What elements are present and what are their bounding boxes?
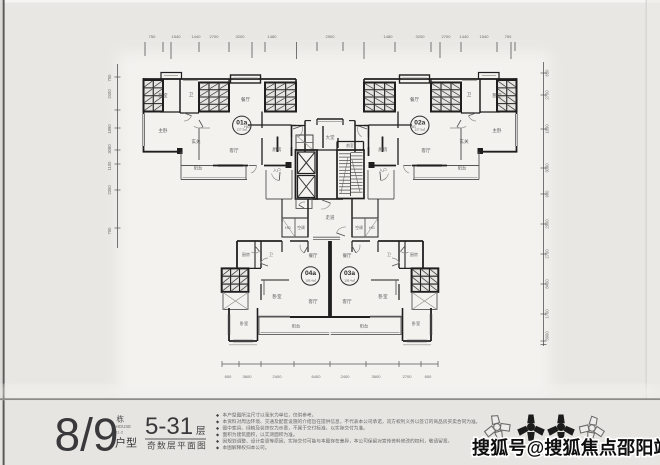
- svg-text:客厅: 客厅: [342, 298, 352, 305]
- svg-text:阳台: 阳台: [360, 323, 368, 330]
- svg-text:玄关: 玄关: [459, 138, 469, 145]
- svg-text:2700: 2700: [545, 90, 550, 100]
- svg-text:本资料对周边环境、交通及配套设施的介绍旨在提供信息，不代表本: 本资料对周边环境、交通及配套设施的介绍旨在提供信息，不代表本公司承诺，双方权利义…: [223, 418, 481, 425]
- svg-text:01a: 01a: [236, 120, 247, 127]
- svg-text:因规划调整、设计变更等原因，实际交付可能与本图存在差异，本公: 因规划调整、设计变更等原因，实际交付可能与本图存在差异，本公司保留对宣传资料修改…: [223, 438, 453, 445]
- svg-text:3600: 3600: [372, 374, 382, 379]
- svg-text:层: 层: [196, 426, 206, 437]
- svg-text:3600: 3600: [243, 374, 253, 379]
- svg-text:HG: HG: [369, 226, 375, 230]
- svg-text:2350: 2350: [107, 185, 112, 195]
- svg-text:1890: 1890: [545, 124, 550, 134]
- svg-text:03a: 03a: [344, 270, 355, 277]
- svg-text:卧室: 卧室: [240, 320, 248, 327]
- svg-text:127.5㎡: 127.5㎡: [237, 127, 248, 132]
- svg-text:2700: 2700: [442, 34, 452, 39]
- svg-text:走道: 走道: [326, 214, 335, 221]
- svg-text:本户型图所注尺寸以毫米为单位，仅供参考。: 本户型图所注尺寸以毫米为单位，仅供参考。: [223, 412, 317, 419]
- svg-text:厨房: 厨房: [410, 251, 418, 257]
- svg-text:3200: 3200: [236, 34, 246, 39]
- svg-text:11-2: 11-2: [116, 430, 124, 435]
- svg-text:1540: 1540: [480, 34, 490, 39]
- svg-text:3080: 3080: [545, 163, 550, 173]
- svg-text:本图解释权归本公司。: 本图解释权归本公司。: [223, 444, 270, 451]
- svg-text:8400: 8400: [545, 279, 550, 289]
- svg-text:1700: 1700: [545, 309, 550, 319]
- svg-text:5-31: 5-31: [145, 413, 193, 440]
- svg-text:1480: 1480: [384, 34, 394, 39]
- svg-text:户型: 户型: [115, 436, 137, 450]
- svg-text:3200: 3200: [416, 34, 426, 39]
- svg-text:2900: 2900: [326, 34, 336, 39]
- svg-text:1440: 1440: [460, 34, 470, 39]
- svg-text:750: 750: [107, 74, 112, 82]
- svg-text:3080: 3080: [107, 144, 112, 154]
- svg-text:大堂: 大堂: [326, 134, 335, 141]
- svg-text:卫: 卫: [189, 92, 194, 97]
- svg-text:面积为建筑面积，以实测面积为准。: 面积为建筑面积，以实测面积为准。: [223, 431, 298, 438]
- svg-text:1480: 1480: [268, 34, 278, 39]
- svg-text:玄关: 玄关: [191, 138, 201, 145]
- svg-text:2400: 2400: [107, 89, 112, 99]
- svg-text:105.4㎡: 105.4㎡: [344, 277, 355, 282]
- svg-text:客厅: 客厅: [421, 147, 431, 154]
- svg-text:105.4㎡: 105.4㎡: [305, 277, 316, 282]
- svg-text:客厅: 客厅: [229, 147, 239, 154]
- svg-text:8/9: 8/9: [55, 409, 119, 461]
- svg-text:厨房: 厨房: [242, 251, 250, 257]
- svg-text:餐厅: 餐厅: [241, 96, 251, 103]
- svg-text:750: 750: [149, 34, 156, 39]
- svg-text:2700: 2700: [210, 34, 220, 39]
- svg-text:3900: 3900: [545, 331, 550, 341]
- svg-text:600: 600: [225, 374, 232, 379]
- svg-text:6400: 6400: [312, 374, 322, 379]
- svg-text:入户: 入户: [273, 167, 281, 173]
- svg-text:2700: 2700: [545, 249, 550, 259]
- svg-text:卫: 卫: [387, 252, 391, 257]
- svg-text:1100: 1100: [107, 161, 112, 171]
- svg-text:卧室: 卧室: [492, 92, 502, 99]
- svg-text:入户: 入户: [379, 167, 387, 173]
- svg-text:阳台: 阳台: [194, 165, 202, 172]
- svg-text:前室: 前室: [346, 143, 354, 148]
- svg-text:卧室: 卧室: [378, 293, 388, 300]
- svg-text:空调: 空调: [355, 225, 363, 230]
- svg-text:卧室: 卧室: [412, 320, 420, 327]
- svg-text:卫: 卫: [269, 252, 273, 257]
- svg-text:HOUSE: HOUSE: [116, 424, 132, 429]
- svg-text:奇数层平面图: 奇数层平面图: [147, 440, 207, 451]
- svg-text:02a: 02a: [414, 120, 425, 127]
- svg-text:主卧: 主卧: [158, 127, 168, 134]
- svg-text:栋: 栋: [117, 414, 125, 424]
- svg-text:1540: 1540: [172, 34, 182, 39]
- svg-text:2400: 2400: [341, 374, 351, 379]
- svg-text:127.5㎡: 127.5㎡: [415, 127, 426, 132]
- svg-text:HG: HG: [285, 226, 291, 230]
- svg-text:厨房: 厨房: [378, 146, 388, 153]
- svg-text:客厅: 客厅: [308, 298, 318, 305]
- svg-text:卧室: 卧室: [272, 293, 282, 300]
- svg-text:2900: 2900: [545, 219, 550, 229]
- svg-text:阳台: 阳台: [292, 323, 300, 330]
- svg-text:2400: 2400: [273, 374, 283, 379]
- svg-text:1890: 1890: [107, 124, 112, 134]
- svg-text:厨房: 厨房: [272, 146, 282, 153]
- svg-text:餐厅: 餐厅: [410, 96, 420, 103]
- svg-text:主卧: 主卧: [492, 127, 502, 134]
- svg-text:650: 650: [545, 69, 550, 77]
- svg-text:卧室: 卧室: [158, 92, 168, 99]
- svg-text:900: 900: [545, 190, 550, 198]
- svg-text:阳台: 阳台: [458, 165, 466, 172]
- svg-text:2700: 2700: [403, 374, 413, 379]
- svg-text:搜狐号@搜狐焦点邵阳站: 搜狐号@搜狐焦点邵阳站: [472, 437, 660, 458]
- svg-text:04a: 04a: [305, 270, 316, 277]
- svg-text:餐厅: 餐厅: [309, 252, 318, 259]
- svg-text:图中家具、绿植及装饰仅为示意，不属于交付标准，以实际交付为准: 图中家具、绿植及装饰仅为示意，不属于交付标准，以实际交付为准。: [223, 425, 368, 432]
- svg-text:600: 600: [425, 374, 432, 379]
- svg-text:餐厅: 餐厅: [343, 252, 352, 259]
- svg-text:750: 750: [107, 227, 112, 235]
- svg-text:1440: 1440: [192, 34, 202, 39]
- svg-text:750: 750: [505, 34, 512, 39]
- svg-text:空调: 空调: [297, 225, 305, 230]
- svg-text:卫: 卫: [467, 92, 472, 97]
